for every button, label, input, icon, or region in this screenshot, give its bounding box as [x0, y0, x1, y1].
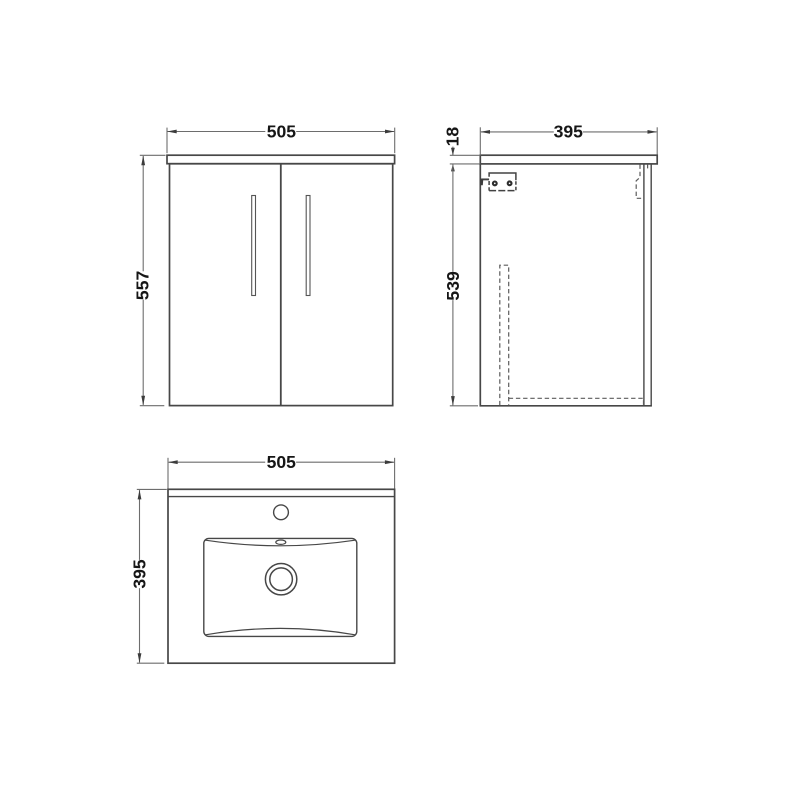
svg-text:505: 505 — [267, 121, 297, 141]
svg-text:395: 395 — [130, 559, 150, 589]
svg-text:18: 18 — [443, 127, 463, 147]
svg-text:557: 557 — [132, 271, 152, 301]
svg-text:505: 505 — [267, 452, 297, 472]
svg-text:395: 395 — [554, 121, 584, 141]
svg-text:539: 539 — [443, 271, 463, 301]
